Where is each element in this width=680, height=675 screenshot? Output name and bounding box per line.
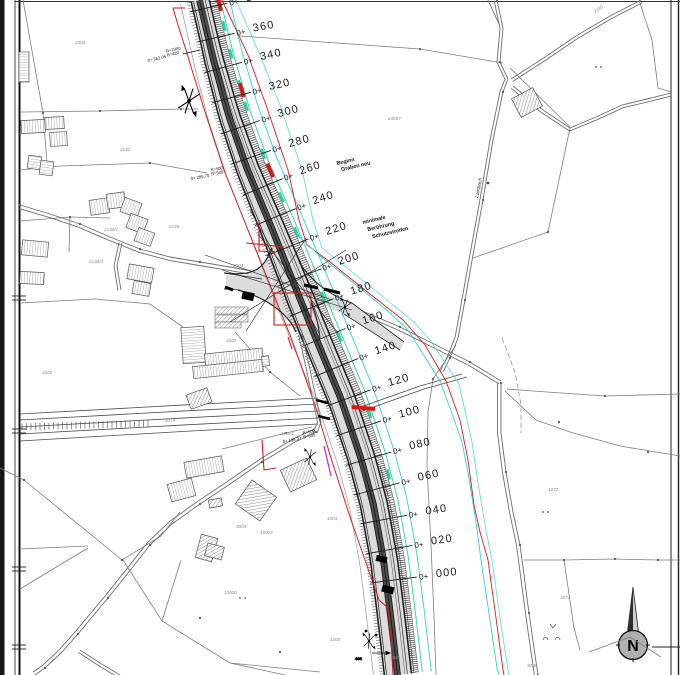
svg-text:0+: 0+ [408,510,419,520]
svg-text:1000: 1000 [330,637,341,642]
svg-text:N: N [627,638,639,655]
svg-text:24007: 24007 [387,116,401,121]
svg-text:466: 466 [355,656,362,661]
svg-text:000: 000 [435,566,458,580]
svg-text:3005: 3005 [390,655,401,660]
svg-text:1072: 1072 [548,487,559,492]
svg-text:1074: 1074 [165,417,176,423]
svg-text:2139: 2139 [168,224,180,229]
svg-text:2138/3: 2138/3 [88,259,103,264]
svg-text:10001: 10001 [281,431,294,436]
svg-text:1004: 1004 [327,516,338,521]
svg-text:2138/1: 2138/1 [103,227,118,232]
svg-text:0+: 0+ [414,540,425,550]
svg-text:3006: 3006 [527,663,538,668]
svg-text:3004: 3004 [236,524,247,529]
svg-text:2000: 2000 [41,370,53,375]
svg-text:1071: 1071 [560,595,571,600]
svg-text:10000: 10000 [224,590,237,595]
svg-text:2004: 2004 [232,263,244,268]
svg-text:2003: 2003 [74,40,86,45]
svg-text:10002: 10002 [260,530,273,535]
svg-text:0+: 0+ [419,572,429,582]
svg-text:2142: 2142 [119,147,131,152]
svg-text:2000: 2000 [225,338,237,343]
